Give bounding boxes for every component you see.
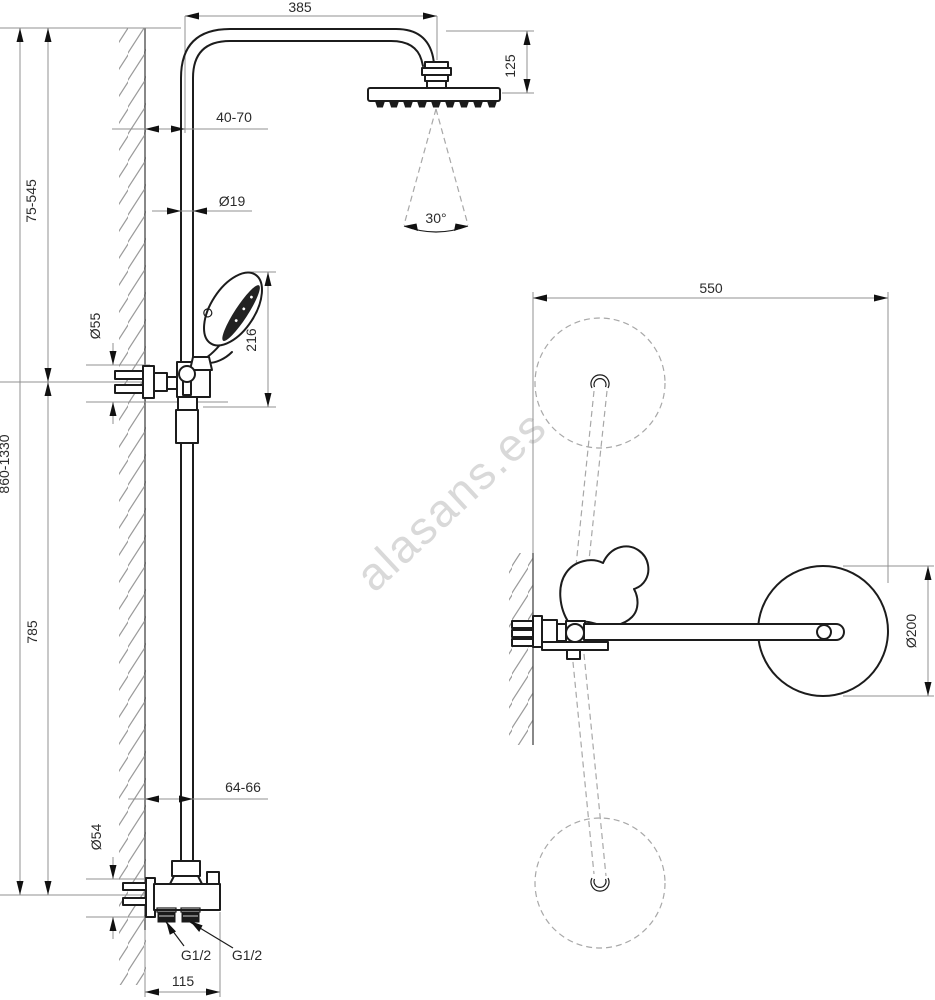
dim-total-height-range: 860-1330 xyxy=(0,28,24,895)
technical-drawing: alasans.es xyxy=(0,0,935,1000)
dim-upper-height-range: 75-545 xyxy=(23,28,52,382)
side-view: 550 Ø200 xyxy=(509,280,934,948)
svg-text:75-545: 75-545 xyxy=(23,179,39,223)
diverter-knob xyxy=(179,366,195,382)
svg-text:40-70: 40-70 xyxy=(216,109,252,125)
spray-cone: 30° xyxy=(404,109,468,232)
arm-connector xyxy=(422,62,451,88)
dim-inlet-spacing: 115 xyxy=(145,973,220,996)
riser-pipe-and-arm xyxy=(181,29,435,863)
svg-text:115: 115 xyxy=(172,973,195,989)
hand-shower xyxy=(191,262,273,363)
svg-text:216: 216 xyxy=(243,328,259,352)
dim-head-height: 125 xyxy=(502,31,531,93)
dim-escutcheon-diameter: Ø54 xyxy=(88,824,117,939)
svg-text:550: 550 xyxy=(699,280,723,296)
diverter-step xyxy=(207,872,219,884)
spray-nozzles xyxy=(376,101,497,107)
svg-text:Ø55: Ø55 xyxy=(87,313,103,340)
swivel-arm xyxy=(584,624,844,640)
svg-text:385: 385 xyxy=(288,0,312,15)
slider-clamp xyxy=(176,410,198,443)
svg-text:860-1330: 860-1330 xyxy=(0,434,12,493)
pipe-union xyxy=(172,861,200,876)
arm-end-joint xyxy=(817,625,831,639)
diverter-pull xyxy=(183,381,191,395)
wall-hatching-side xyxy=(509,553,533,745)
svg-text:Ø19: Ø19 xyxy=(219,193,246,209)
dim-holder-diameter: Ø55 xyxy=(87,313,117,424)
svg-text:125: 125 xyxy=(502,54,518,78)
wall-supply-pin xyxy=(123,883,146,890)
svg-text:Ø200: Ø200 xyxy=(903,614,919,648)
dim-pipe-diameter: Ø19 xyxy=(152,193,252,215)
shower-system-diagram: alasans.es xyxy=(0,0,935,1000)
wall-union-pin xyxy=(115,371,143,379)
dim-swivel-reach: 550 xyxy=(533,280,888,302)
mixer-body xyxy=(154,884,220,910)
dim-lower-height: 785 xyxy=(24,382,52,895)
wall-hatching-front xyxy=(119,28,146,985)
svg-text:64-66: 64-66 xyxy=(225,779,261,795)
pivot-joint xyxy=(566,624,584,642)
svg-text:785: 785 xyxy=(24,620,40,644)
overhead-shower-bottom-position xyxy=(535,642,665,948)
dim-head-diameter: Ø200 xyxy=(903,566,932,696)
svg-text:Ø54: Ø54 xyxy=(88,824,104,851)
dim-arm-reach: 385 xyxy=(185,0,437,20)
spray-angle-label: 30° xyxy=(425,210,446,226)
hand-shower-side xyxy=(560,546,648,626)
wall-flange xyxy=(143,366,154,398)
dim-bottom-wall-clearance: 64-66 xyxy=(128,779,268,803)
inlet-label-left: G1/2 xyxy=(181,947,212,963)
overhead-shower-plate xyxy=(368,88,500,101)
inlet-label-right: G1/2 xyxy=(232,947,263,963)
inlet-leaders xyxy=(166,921,233,948)
